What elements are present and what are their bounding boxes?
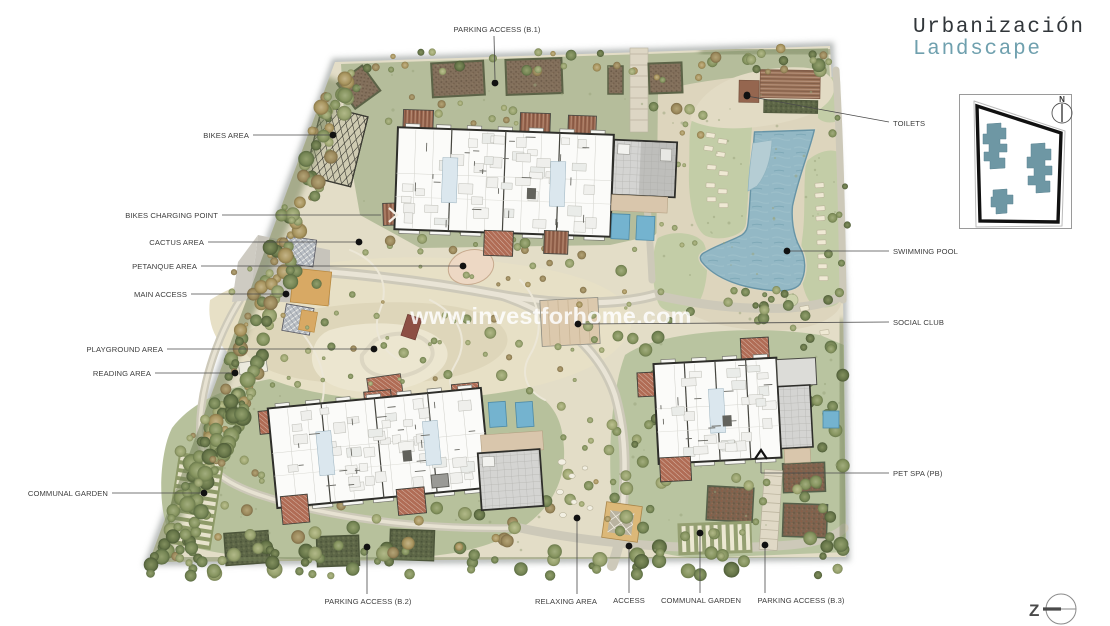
svg-text:PARKING ACCESS (B.1): PARKING ACCESS (B.1)	[453, 25, 540, 34]
svg-text:BIKES CHARGING POINT: BIKES CHARGING POINT	[125, 211, 218, 220]
svg-text:www.investforhome.com: www.investforhome.com	[409, 303, 691, 329]
svg-text:N: N	[1059, 95, 1065, 104]
svg-text:PETANQUE AREA: PETANQUE AREA	[132, 262, 198, 271]
svg-text:Z: Z	[1029, 601, 1039, 620]
svg-text:PARKING ACCESS (B.2): PARKING ACCESS (B.2)	[324, 597, 411, 606]
svg-text:CACTUS AREA: CACTUS AREA	[149, 238, 205, 247]
svg-text:SOCIAL CLUB: SOCIAL CLUB	[893, 318, 944, 327]
svg-text:COMMUNAL GARDEN: COMMUNAL GARDEN	[28, 489, 108, 498]
svg-text:COMMUNAL GARDEN: COMMUNAL GARDEN	[661, 596, 741, 605]
svg-text:PLAYGROUND AREA: PLAYGROUND AREA	[87, 345, 164, 354]
svg-text:RELAXING AREA: RELAXING AREA	[535, 597, 598, 606]
svg-text:PET SPA (PB): PET SPA (PB)	[893, 469, 943, 478]
svg-text:BIKES AREA: BIKES AREA	[203, 131, 250, 140]
svg-text:MAIN ACCESS: MAIN ACCESS	[134, 290, 187, 299]
svg-text:Landscape: Landscape	[913, 38, 1042, 61]
svg-text:PARKING ACCESS (B.3): PARKING ACCESS (B.3)	[757, 596, 844, 605]
svg-text:SWIMMING POOL: SWIMMING POOL	[893, 247, 958, 256]
svg-text:ACCESS: ACCESS	[613, 596, 645, 605]
svg-text:TOILETS: TOILETS	[893, 119, 925, 128]
svg-text:Urbanización: Urbanización	[913, 16, 1085, 39]
svg-text:READING AREA: READING AREA	[93, 369, 152, 378]
